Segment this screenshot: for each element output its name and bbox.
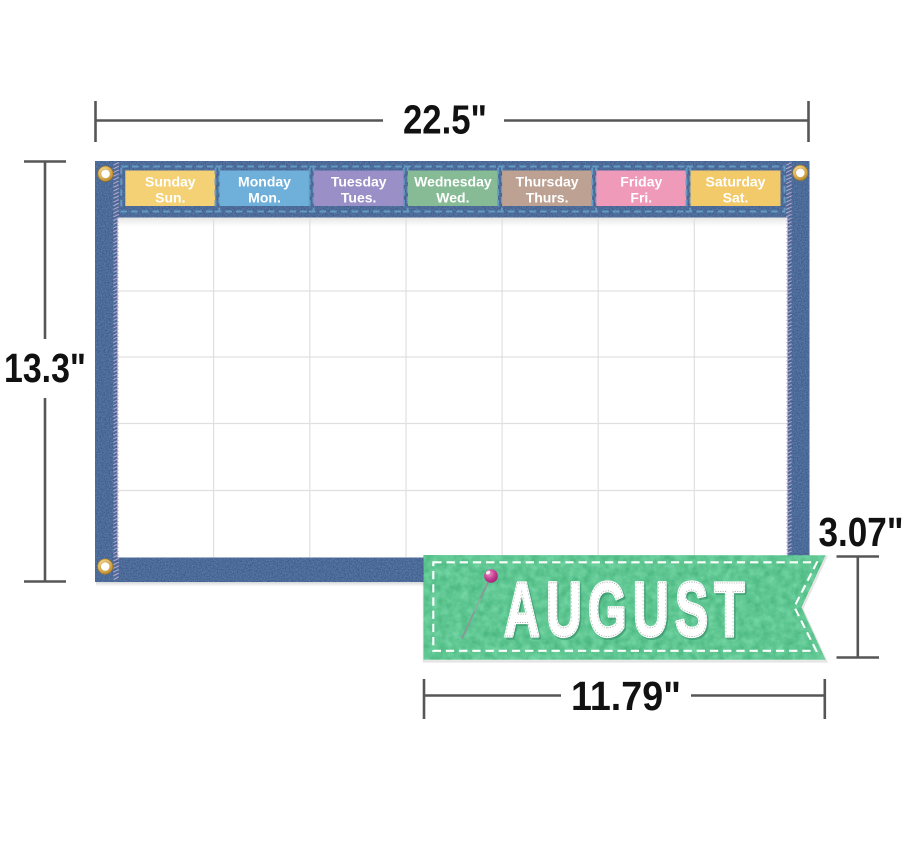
svg-text:11.79": 11.79": [571, 673, 681, 719]
svg-text:Sun.: Sun.: [155, 190, 185, 206]
svg-text:Tuesday: Tuesday: [331, 174, 387, 190]
svg-text:Sat.: Sat.: [723, 190, 749, 206]
svg-text:Thurs.: Thurs.: [526, 190, 569, 206]
svg-text:22.5": 22.5": [403, 97, 487, 143]
svg-text:Saturday: Saturday: [706, 174, 766, 190]
svg-text:Fri.: Fri.: [630, 190, 652, 206]
svg-text:3.07": 3.07": [819, 509, 904, 555]
svg-text:Mon.: Mon.: [248, 190, 281, 206]
svg-text:Tues.: Tues.: [341, 190, 377, 206]
svg-text:AUGUST: AUGUST: [504, 567, 751, 653]
svg-text:Thursday: Thursday: [516, 174, 579, 190]
svg-text:Wednesday: Wednesday: [414, 174, 492, 190]
svg-text:13.3": 13.3": [4, 345, 86, 391]
svg-text:Wed.: Wed.: [436, 190, 469, 206]
svg-text:Monday: Monday: [238, 174, 291, 190]
svg-text:Friday: Friday: [620, 174, 662, 190]
svg-text:Sunday: Sunday: [145, 174, 196, 190]
